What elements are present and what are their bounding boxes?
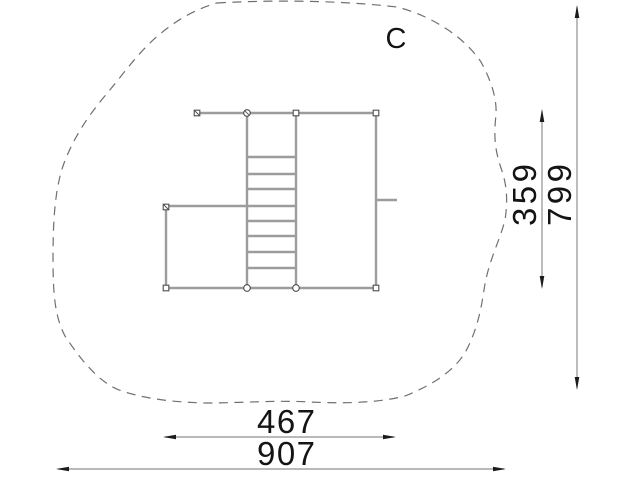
post-marker-circle-slashed bbox=[244, 110, 251, 117]
plan-view-drawing: C 359 799 467 907 bbox=[0, 0, 640, 480]
dim-zone-width: 907 bbox=[56, 435, 506, 472]
dim-structure-depth-value: 359 bbox=[506, 164, 543, 226]
post-marker-square bbox=[163, 285, 169, 291]
arrowhead-up bbox=[575, 5, 580, 18]
post-marker-square-slashed bbox=[163, 204, 169, 210]
dim-zone-depth: 799 bbox=[541, 5, 579, 390]
post-marker-square bbox=[373, 110, 379, 116]
arrowhead-left bbox=[163, 435, 176, 440]
dim-zone-depth-value: 799 bbox=[541, 164, 578, 226]
zone-label: C bbox=[386, 23, 407, 55]
arrowhead-right bbox=[493, 467, 506, 472]
safety-zone-outline bbox=[53, 1, 507, 403]
post-marker-square bbox=[293, 110, 299, 116]
arrowhead-down bbox=[575, 377, 580, 390]
post-marker-circle bbox=[293, 285, 300, 292]
dim-zone-width-value: 907 bbox=[257, 435, 315, 472]
dim-structure-depth: 359 bbox=[506, 109, 544, 289]
climbing-structure bbox=[163, 110, 397, 292]
post-marker-circle bbox=[244, 285, 251, 292]
technical-drawing-page: C 359 799 467 907 bbox=[0, 0, 640, 480]
arrowhead-left bbox=[56, 467, 69, 472]
post-marker-square bbox=[373, 285, 379, 291]
arrowhead-down bbox=[540, 276, 545, 289]
arrowhead-right bbox=[383, 435, 396, 440]
post-marker-square-slashed bbox=[194, 110, 200, 116]
arrowhead-up bbox=[540, 109, 545, 122]
